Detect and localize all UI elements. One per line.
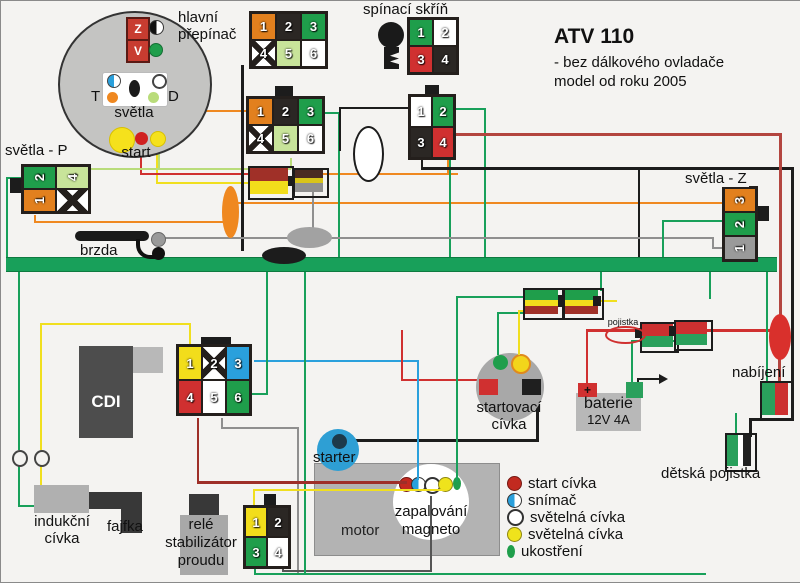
battery-spec: 12V 4A xyxy=(576,412,641,427)
ignition-coil-label: indukční cívka xyxy=(23,513,101,547)
ignition-coil-label-line2: cívka xyxy=(23,530,101,547)
page-title: ATV 110 xyxy=(554,25,634,49)
wire-segment-yellow xyxy=(253,489,446,491)
legend-item-4: ukostření xyxy=(507,543,625,559)
magneto-label-line2: magneto xyxy=(384,521,478,539)
starter-relay-label: startovací cívka xyxy=(463,399,555,433)
main-switch-label-line1: hlavní xyxy=(178,9,236,26)
legend-symbol-1 xyxy=(507,493,522,508)
engine-label: motor xyxy=(341,522,379,539)
battery-label: baterie xyxy=(576,395,641,413)
legend-item-1: snímač xyxy=(507,492,625,508)
child-fuse-label: dětská pojistka xyxy=(661,465,760,482)
regulator-relay-label-line1: relé xyxy=(151,516,251,534)
starter-label: starter xyxy=(313,449,356,466)
wire-segment-yellow xyxy=(518,310,520,355)
legend-symbol-2 xyxy=(507,509,524,526)
ignition-coil-label-line1: indukční xyxy=(23,513,101,530)
starter-relay-label-line2: cívka xyxy=(463,416,555,433)
main-switch-label: hlavní přepínač xyxy=(178,9,236,43)
charging-label: nabíjení xyxy=(732,364,785,381)
wire-segment-blue xyxy=(417,360,419,480)
legend-label-0: start cívka xyxy=(528,475,596,492)
legend-item-0: start cívka xyxy=(507,475,625,491)
page-subtitle-1: - bez dálkového ovladače xyxy=(554,54,724,71)
wiring-diagram-canvas: 123456123456123412342413211234561234 Z V… xyxy=(0,0,800,583)
wire-segment-dred xyxy=(197,481,407,484)
rear-lights-label: světla - Z xyxy=(683,170,749,187)
legend-label-3: světelná cívka xyxy=(528,526,623,543)
front-lights-label: světla - P xyxy=(5,142,68,159)
legend-item-3: světelná cívka xyxy=(507,526,625,542)
legend-label-4: ukostření xyxy=(521,543,583,560)
spark-plug-cap-label: fajfka xyxy=(107,518,143,535)
legend-label-2: světelná cívka xyxy=(530,509,625,526)
legend: start cívkasnímačsvětelná cívkasvětelná … xyxy=(507,475,625,559)
wire-segment-green xyxy=(497,312,499,355)
ignition-box-label: spínací skříň xyxy=(363,1,448,18)
regulator-relay-label-line3: proudu xyxy=(151,552,251,570)
main-switch-label-line2: přepínač xyxy=(178,26,236,43)
regulator-relay-label-line2: stabilizátor xyxy=(151,534,251,552)
brake-label: brzda xyxy=(80,242,118,259)
cdi-label: CDI xyxy=(79,392,133,412)
magneto-label: zapalování magneto xyxy=(384,503,478,539)
page-subtitle-2: model od roku 2005 xyxy=(554,73,687,90)
legend-symbol-4 xyxy=(507,545,515,558)
regulator-relay-label: relé stabilizátor proudu xyxy=(151,516,251,570)
legend-label-1: snímač xyxy=(528,492,576,509)
legend-item-2: světelná cívka xyxy=(507,509,625,525)
magneto-label-line1: zapalování xyxy=(384,503,478,521)
starter-relay-label-line1: startovací xyxy=(463,399,555,416)
wire-segment-green xyxy=(456,296,458,482)
legend-symbol-0 xyxy=(507,476,522,491)
fuse-label: pojistka xyxy=(599,317,647,327)
legend-symbol-3 xyxy=(507,527,522,542)
